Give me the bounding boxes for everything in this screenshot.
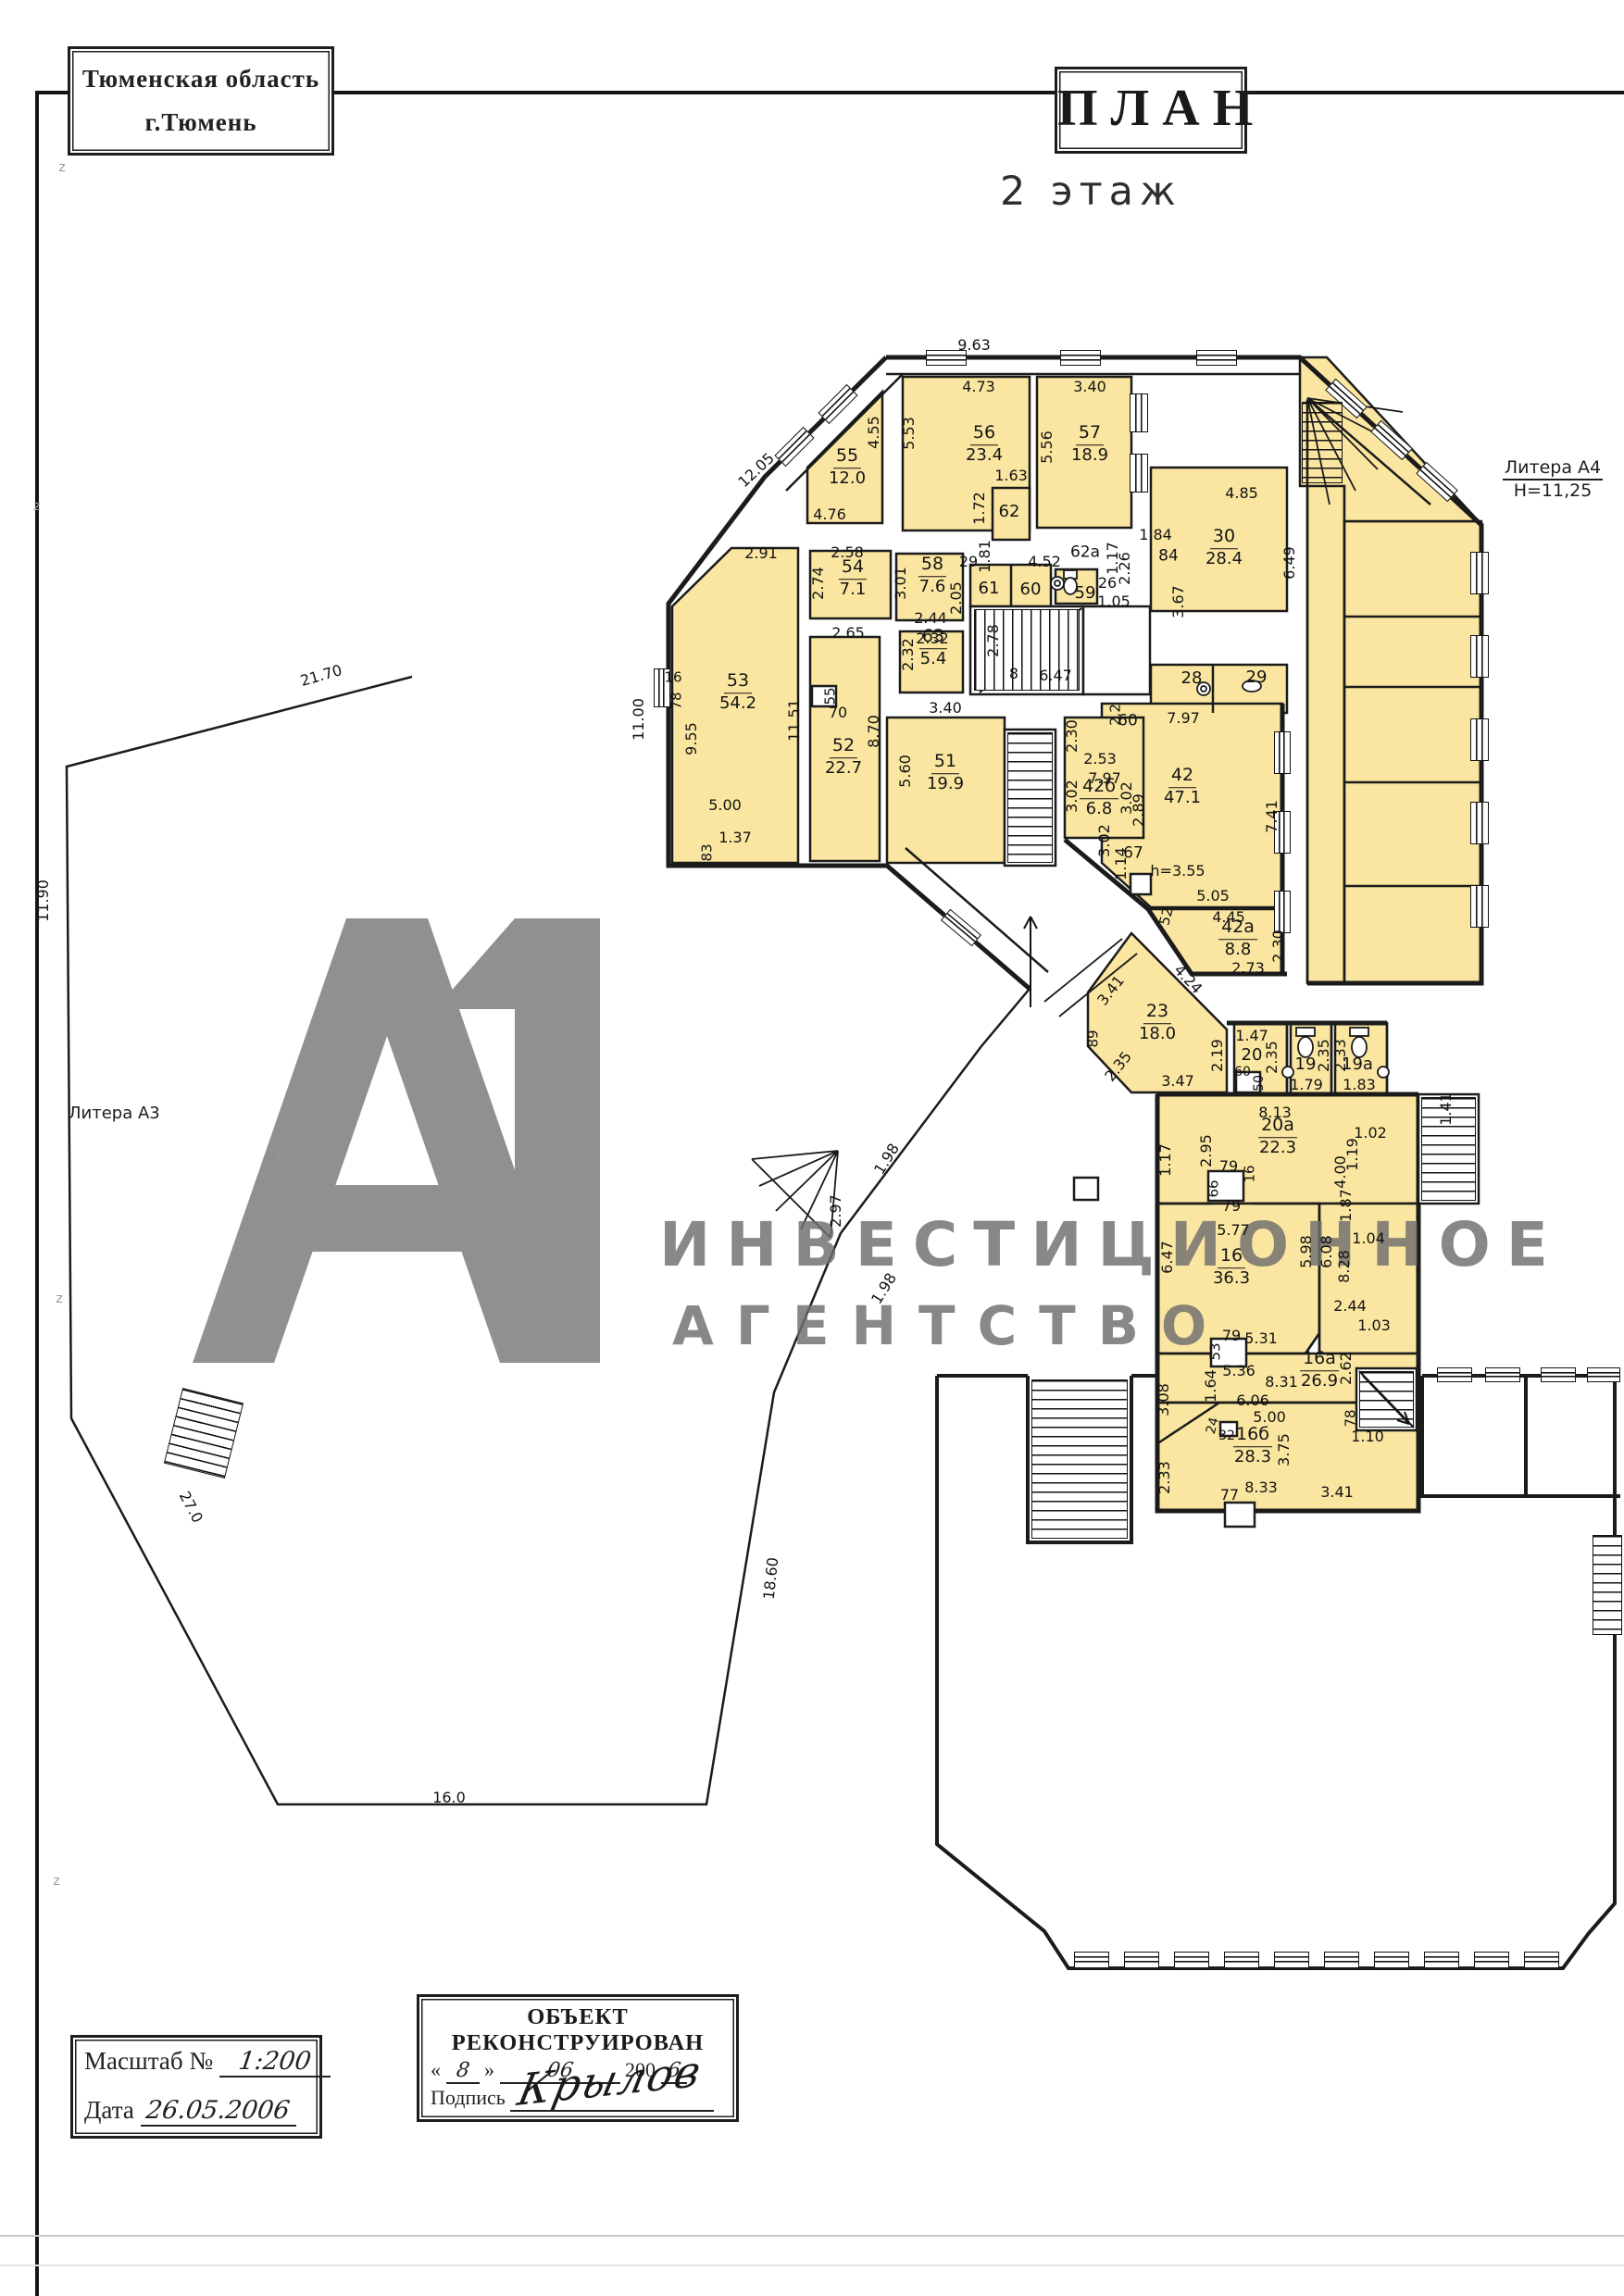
dim-label: 16 <box>664 671 681 685</box>
region-name: Тюменская область <box>70 65 331 94</box>
dim-label: 60 <box>1234 1066 1251 1079</box>
dim-label: 2.53 <box>1083 752 1117 767</box>
dim-label: 7.41 <box>1265 800 1280 833</box>
dim-label: 2.73 <box>1231 961 1265 976</box>
room-label: 547.1 <box>839 557 867 600</box>
dim-label: 5.31 <box>1244 1331 1278 1346</box>
dim-label: 1.64 <box>1204 1369 1218 1403</box>
dim-label: 67 <box>1123 846 1143 862</box>
city-name: г.Тюмень <box>70 108 331 137</box>
dim-label: 8.70 <box>867 715 881 748</box>
room-label: 5119.9 <box>927 752 964 794</box>
watermark-agency-type: АГЕНТСТВО <box>672 1294 1229 1357</box>
dim-label: 3.40 <box>929 701 962 716</box>
dim-label: 55 <box>824 687 838 705</box>
dim-label: 78 <box>1344 1409 1358 1427</box>
room-label: 42б6.8 <box>1080 777 1118 819</box>
dim-label: 8.33 <box>1244 1480 1278 1495</box>
dim-label: 59 <box>1075 585 1096 602</box>
dim-label: 79 <box>1219 1159 1238 1174</box>
dim-label: 2.91 <box>744 546 778 561</box>
dim-label: 3.41 <box>1320 1485 1354 1500</box>
dim-label: 1.81 <box>978 540 993 573</box>
room-label: 42a8.8 <box>1218 917 1257 960</box>
dim-label: 1.04 <box>1352 1231 1385 1246</box>
dim-label: 4.85 <box>1225 486 1258 501</box>
room-label: 2318.0 <box>1139 1002 1176 1044</box>
dim-label: 1.83 <box>1343 1078 1376 1092</box>
room-label: 5354.2 <box>719 671 756 714</box>
dim-label: 1.63 <box>994 468 1028 483</box>
dim-label: 8.28 <box>1337 1250 1352 1283</box>
dim-label: 1.17 <box>1158 1143 1173 1177</box>
dim-label: 1.41 <box>1439 1092 1454 1126</box>
region-stamp: Тюменская область г.Тюмень <box>68 46 334 156</box>
dim-label: 2.62 <box>1339 1352 1354 1385</box>
dim-label: 2.89 <box>1131 793 1146 827</box>
dim-label: 7.97 <box>1167 711 1200 726</box>
dim-label: h=3.55 <box>1150 864 1205 879</box>
dim-label: 9.63 <box>957 338 991 353</box>
room-label: 20a22.3 <box>1258 1116 1297 1158</box>
dim-label: 1.87 <box>1339 1189 1354 1222</box>
dim-label: 29 <box>1246 669 1268 686</box>
dim-label: z <box>275 1147 281 1160</box>
dim-label: 2.05 <box>949 581 964 615</box>
dim-label: 1.84 <box>1139 528 1172 543</box>
room-label: 3028.4 <box>1206 527 1243 569</box>
day-value: 8 <box>455 2059 471 2082</box>
dim-label: 89 <box>1087 1029 1101 1047</box>
room-label: 587.6 <box>918 555 946 597</box>
room-label: 1636.3 <box>1213 1246 1250 1289</box>
dim-label: 2.30 <box>1271 930 1286 963</box>
dim-label: 2.74 <box>811 567 826 600</box>
dim-label: 6.08 <box>1319 1235 1334 1268</box>
scale-value: 1:200 <box>237 2047 313 2076</box>
date-label: Дата <box>84 2096 134 2124</box>
dim-label: 6.47 <box>1039 668 1072 683</box>
dim-label: 9.55 <box>684 722 699 755</box>
dim-label: 2.44 <box>1333 1299 1367 1314</box>
dim-label: 3.47 <box>1161 1074 1194 1089</box>
room-label: 635.4 <box>919 627 947 669</box>
dim-label: 2.95 <box>1199 1134 1214 1167</box>
dim-label: 19a <box>1342 1056 1373 1073</box>
dim-label: 3.40 <box>1073 380 1106 394</box>
dim-label: z <box>53 1875 59 1888</box>
dim-label: 4.55 <box>867 416 881 449</box>
dim-label: 11.90 <box>36 880 51 922</box>
watermark-logo-a1 <box>193 918 600 1363</box>
dim-label: 1.05 <box>1097 594 1131 609</box>
dim-label: 83 <box>701 843 715 861</box>
dim-label: 4.73 <box>962 380 995 394</box>
dim-label: 2.44 <box>914 611 947 626</box>
room-label: 16б28.3 <box>1233 1425 1272 1467</box>
dim-label: 1.03 <box>1357 1318 1391 1333</box>
floor-subtitle: 2 этаж <box>1000 168 1241 215</box>
dim-label: 5.36 <box>1222 1364 1255 1379</box>
dim-label: 5.77 <box>1217 1223 1250 1238</box>
dim-label: 53 <box>1209 1342 1223 1360</box>
dim-label: z <box>58 161 65 174</box>
dim-label: 20 <box>1242 1047 1263 1064</box>
dim-label: 60 <box>1020 581 1042 598</box>
dim-label: 11.51 <box>787 699 802 742</box>
dim-label: 26 <box>1098 576 1117 591</box>
dim-label: 1.72 <box>972 492 987 525</box>
watermark-agency-name: ИНВЕСТИЦИОННОЕ <box>659 1209 1564 1280</box>
dim-label: 70 <box>829 705 847 720</box>
dim-label: 11.00 <box>631 698 646 741</box>
dim-label: 2.97 <box>829 1194 843 1228</box>
dim-label: 2.78 <box>986 624 1001 657</box>
litera-a4-name: Литера А4 <box>1503 457 1603 480</box>
quote-open: « <box>431 2058 441 2081</box>
room-label: 16a26.9 <box>1300 1349 1339 1391</box>
room-label: 5718.9 <box>1071 423 1108 466</box>
dim-label: 16 <box>1243 1165 1257 1182</box>
litera-a4-label: Литера А4 Н=11,25 <box>1493 457 1613 501</box>
dim-label: 4.52 <box>1028 555 1061 569</box>
dim-label: 18.60 <box>762 1556 781 1600</box>
dim-label: 8 <box>1009 667 1018 681</box>
dim-label: 2.30 <box>1065 719 1080 753</box>
plan-title-stamp: ПЛАН <box>1055 67 1247 154</box>
dim-label: 62 <box>999 504 1020 520</box>
dim-label: 3.08 <box>1156 1383 1171 1416</box>
scale-label: Масштаб № <box>84 2047 213 2075</box>
dim-label: 3.01 <box>893 567 908 600</box>
dim-label: 3.02 <box>1065 780 1080 813</box>
room-label: 5512.0 <box>829 446 866 489</box>
dim-label: 28 <box>1181 670 1203 687</box>
dim-label: 2.33 <box>1157 1461 1172 1494</box>
dim-label: 6.49 <box>1282 546 1297 580</box>
dim-label: 66 <box>1207 1179 1221 1197</box>
dim-label: 2.35 <box>1317 1039 1331 1072</box>
dim-label: 62a <box>1070 545 1100 561</box>
room-label: 5222.7 <box>825 736 862 779</box>
dim-label: 2.35 <box>1265 1041 1280 1074</box>
dim-label: 1.37 <box>718 830 752 845</box>
room-label: 5623.4 <box>966 423 1003 466</box>
litera-a4-height: Н=11,25 <box>1514 480 1593 501</box>
dim-label: 78 <box>670 692 684 709</box>
dim-label: 5.98 <box>1299 1235 1314 1268</box>
dim-label: 6.47 <box>1160 1241 1175 1274</box>
dim-label: z <box>33 500 40 513</box>
dim-label: 5.60 <box>898 755 913 788</box>
dim-label: 5.05 <box>1196 889 1230 904</box>
dim-label: z <box>56 1292 62 1305</box>
dim-label: 2.65 <box>831 626 865 641</box>
dim-label: 19 <box>1295 1056 1317 1073</box>
dim-label: 1.79 <box>1290 1078 1323 1092</box>
dim-label: 79 <box>1222 1329 1241 1343</box>
dim-label: 5.56 <box>1040 430 1055 464</box>
dim-label: 2.32 <box>901 638 916 671</box>
dim-label: 1.10 <box>1351 1429 1384 1444</box>
dim-label: 84 <box>1158 549 1179 565</box>
dim-label: 77 <box>1220 1488 1239 1503</box>
dim-label: 3.75 <box>1277 1433 1292 1466</box>
dim-label: 50 <box>1253 1075 1266 1092</box>
room-label: 4247.1 <box>1164 766 1201 808</box>
dim-label: 5.00 <box>708 798 742 813</box>
scale-date-stamp: Масштаб № 1:200 Дата 26.05.2006 <box>70 2035 322 2139</box>
dim-label: 79 <box>1222 1199 1241 1214</box>
dim-label: 5.00 <box>1253 1410 1286 1425</box>
signature-label: Подпись <box>431 2086 506 2109</box>
dim-label: 2.19 <box>1210 1039 1225 1072</box>
dim-label: 61 <box>979 580 1000 597</box>
dim-label: 3.67 <box>1171 585 1186 618</box>
dim-label: 60 <box>1118 714 1138 730</box>
dim-label: 6.06 <box>1236 1393 1269 1408</box>
quote-close: » <box>484 2058 494 2081</box>
dim-label: 3.02 <box>1097 824 1112 857</box>
scanned-floor-plan-page: ИНВЕСТИЦИОННОЕ АГЕНТСТВО 9.634.733.405.5… <box>0 0 1624 2296</box>
litera-a3-label: Литера А3 <box>69 1104 160 1123</box>
date-value: 26.05.2006 <box>144 2096 292 2125</box>
dim-label: 8.31 <box>1265 1375 1298 1390</box>
dim-label: 16.0 <box>432 1791 466 1805</box>
dim-label: 4.76 <box>813 507 846 522</box>
dim-label: 5.53 <box>902 417 917 450</box>
dim-label: 4.00 <box>1333 1155 1348 1189</box>
dim-label: 2.26 <box>1118 552 1132 585</box>
